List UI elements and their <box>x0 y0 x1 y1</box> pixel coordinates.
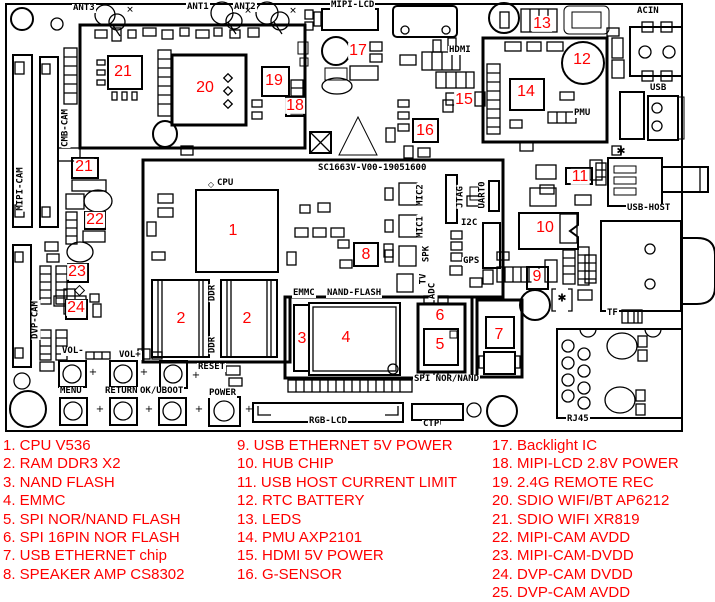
marker-19: 19 <box>264 73 284 89</box>
symbol-glyph-1: ✱ <box>557 293 566 304</box>
silk-label-adc-v9: ADC <box>429 282 438 300</box>
pcb-line-art <box>0 0 715 436</box>
silk-label-i2c: I2C <box>460 219 478 228</box>
marker-3: 3 <box>297 331 308 347</box>
symbol-glyph-5: + <box>192 371 200 381</box>
marker-16: 16 <box>415 123 435 139</box>
marker-2: 2 <box>176 311 187 327</box>
wifi-module <box>80 25 305 155</box>
silk-label-ok-uboot: OK/UBOOT <box>139 387 184 396</box>
silk-label-cpu: CPU <box>216 179 234 188</box>
silk-label-pmu: PMU <box>573 109 591 118</box>
silk-label-reset: RESET <box>197 363 226 372</box>
legend-item-9: 9. USB ETHERNET 5V POWER <box>237 437 457 455</box>
silk-label-vol: VOL- <box>61 347 85 356</box>
legend-column-3: 17. Backlight IC18. MIPI-LCD 2.8V POWER1… <box>492 437 679 602</box>
legend-item-5: 5. SPI NOR/NAND FLASH <box>3 511 185 529</box>
legend-item-17: 17. Backlight IC <box>492 437 679 455</box>
marker-20: 20 <box>195 80 215 96</box>
storage-module <box>285 296 522 392</box>
pcb-component-diagram: ANT3ANT1ANT2MIPI-LCDACINHDMIUSBPMUUSB-HO… <box>0 0 715 602</box>
legend-item-7: 7. USB ETHERNET chip <box>3 547 185 565</box>
marker-1: 1 <box>228 223 239 239</box>
silk-label-ctp: CTP <box>422 420 440 429</box>
marker-18: 18 <box>285 98 305 114</box>
legend-item-25: 25. DVP-CAM AVDD <box>492 584 679 602</box>
silk-label-ddr-v4: DDR <box>209 336 218 354</box>
marker-8: 8 <box>361 247 372 263</box>
symbol-glyph-11: ✕ <box>244 8 252 17</box>
silk-label-spk-v7: SPK <box>423 245 432 263</box>
silk-label-gps: GPS <box>462 257 480 266</box>
symbol-glyph-10: ✕ <box>126 7 134 16</box>
legend-item-6: 6. SPI 16PIN NOR FLASH <box>3 529 185 547</box>
cpu-module <box>143 160 503 362</box>
symbol-glyph-3: + <box>89 368 97 378</box>
symbol-glyph-12: ✕ <box>289 8 297 17</box>
legend-item-10: 10. HUB CHIP <box>237 455 457 473</box>
silk-label-rgb-lcd: RGB-LCD <box>308 417 348 426</box>
legend-item-12: 12. RTC BATTERY <box>237 492 457 510</box>
top-middle-components <box>298 6 485 158</box>
marker-4: 4 <box>341 330 352 346</box>
legend-item-8: 8. SPEAKER AMP CS8302 <box>3 566 185 584</box>
marker-13: 13 <box>532 16 552 32</box>
legend-item-21: 21. SDIO WIFI XR819 <box>492 511 679 529</box>
silk-label-dvp-cam-v2: DVP-CAM <box>32 300 41 340</box>
right-edge-connectors <box>557 22 715 418</box>
silk-label-jtag-v10: JTAG <box>457 185 466 209</box>
legend-item-16: 16. G-SENSOR <box>237 566 457 584</box>
marker-21: 21 <box>113 64 133 80</box>
legend-item-22: 22. MIPI-CAM AVDD <box>492 529 679 547</box>
legend-item-4: 4. EMMC <box>3 492 185 510</box>
marker-9: 9 <box>532 269 543 285</box>
silk-label-rj45: RJ45 <box>566 415 590 424</box>
silk-label-mic1-v6: MIC1 <box>417 215 426 239</box>
camera-connectors <box>13 48 112 371</box>
marker-11: 11 <box>571 169 590 185</box>
marker-24: 24 <box>66 300 86 316</box>
legend-column-2: 9. USB ETHERNET 5V POWER10. HUB CHIP11. … <box>237 437 457 584</box>
marker-14: 14 <box>516 84 536 100</box>
legend-item-14: 14. PMU AXP2101 <box>237 529 457 547</box>
silk-label-mipi-cam-v0: MIPI-CAM <box>17 166 26 211</box>
marker-12: 12 <box>572 52 592 68</box>
legend-item-19: 19. 2.4G REMOTE REC <box>492 474 679 492</box>
silk-label-menu: MENU <box>59 387 83 396</box>
silk-label-spi-nor-nand: SPI NOR/NAND <box>413 375 480 384</box>
silk-label-usb-host: USB-HOST <box>626 204 671 213</box>
silk-label-hdmi: HDMI <box>448 46 472 55</box>
legend-item-18: 18. MIPI-LCD 2.8V POWER <box>492 455 679 473</box>
legend-item-13: 13. LEDS <box>237 511 457 529</box>
silk-label-sc1663v-v00-19051600: SC1663V-V00-19051600 <box>317 164 427 173</box>
silk-label-usb: USB <box>649 84 667 93</box>
marker-15: 15 <box>454 92 474 108</box>
silk-label-cmb-cam-v1: CMB-CAM <box>62 108 71 148</box>
marker-21: 21 <box>74 159 94 175</box>
legend-item-2: 2. RAM DDR3 X2 <box>3 455 185 473</box>
silk-label-vol: VOL+ <box>118 351 142 360</box>
marker-5: 5 <box>435 337 446 353</box>
symbol-glyph-2: ◇ <box>208 181 214 189</box>
silk-label-ddr-v3: DDR <box>209 284 218 302</box>
legend-item-23: 23. MIPI-CAM-DVDD <box>492 547 679 565</box>
symbol-glyph-4: + <box>140 368 148 378</box>
legend-item-24: 24. DVP-CAM DVDD <box>492 566 679 584</box>
silk-label-emmc: EMMC <box>292 289 316 298</box>
silk-label-nand-flash: NAND-FLASH <box>326 289 382 298</box>
legend-item-3: 3. NAND FLASH <box>3 474 185 492</box>
symbol-glyph-6: + <box>96 405 104 415</box>
marker-10: 10 <box>535 220 555 236</box>
symbol-glyph-0: ✱ <box>616 146 625 157</box>
marker-23: 23 <box>67 264 87 280</box>
legend-item-11: 11. USB HOST CURRENT LIMIT <box>237 474 457 492</box>
legend-item-1: 1. CPU V536 <box>3 437 185 455</box>
legend-item-20: 20. SDIO WIFI/BT AP6212 <box>492 492 679 510</box>
marker-2: 2 <box>242 311 253 327</box>
symbol-glyph-9: + <box>245 405 253 415</box>
silk-label-uart0-v11: UART0 <box>479 180 488 209</box>
silk-label-tf: TF <box>606 309 619 318</box>
legend-column-1: 1. CPU V5362. RAM DDR3 X23. NAND FLASH4.… <box>3 437 185 584</box>
silk-label-acin: ACIN <box>636 7 660 16</box>
symbol-glyph-7: + <box>145 405 153 415</box>
silk-label-mipi-lcd: MIPI-LCD <box>330 1 375 10</box>
marker-22: 22 <box>85 212 105 228</box>
silk-label-mic2-v5: MIC2 <box>417 183 426 207</box>
silk-label-power: POWER <box>208 389 237 398</box>
silk-label-return: RETURN <box>104 387 139 396</box>
marker-17: 17 <box>348 43 368 59</box>
silk-label-ant3: ANT3 <box>72 4 96 13</box>
marker-7: 7 <box>494 327 505 343</box>
legend-item-15: 15. HDMI 5V POWER <box>237 547 457 565</box>
symbol-glyph-8: + <box>195 405 203 415</box>
silk-label-ant1: ANT1 <box>186 3 210 12</box>
marker-6: 6 <box>435 308 446 324</box>
